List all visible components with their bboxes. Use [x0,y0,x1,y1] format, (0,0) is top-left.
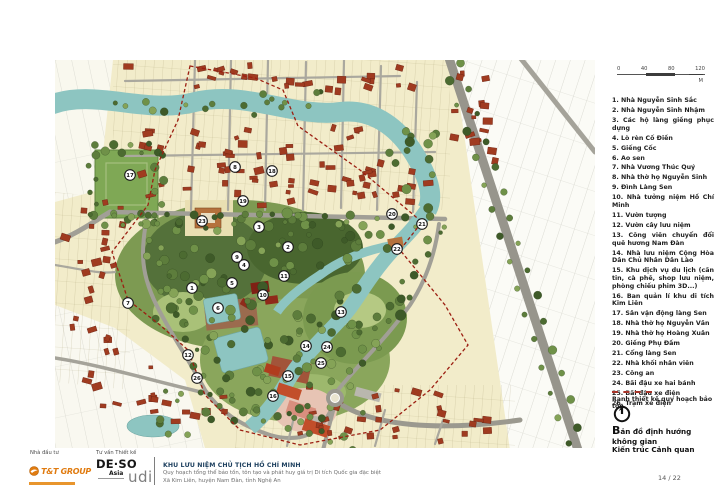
svg-text:13: 13 [337,310,345,316]
legend-item: 19. Nhà thờ họ Hoàng Xuân [612,330,714,338]
svg-text:25: 25 [317,361,325,367]
tnt-name: T&T GROUP [41,467,91,476]
svg-text:19: 19 [239,199,247,205]
legend-item: 6. Ao sen [612,155,714,163]
tnt-group-logo: T&T GROUP [29,461,91,485]
svg-text:12: 12 [184,353,192,359]
map-marker: 6 [213,303,224,314]
svg-text:20: 20 [388,212,396,218]
legend-item: 2. Nhà Nguyễn Sinh Nhậm [612,107,714,115]
masterplan-map: 1234567891011121314151617181920212223242… [55,60,595,448]
consultant-label: Tư vấn Thiết kế [96,450,136,456]
svg-text:17: 17 [126,173,134,179]
legend-item: 4. Lò rèn Cố Điền [612,135,714,143]
legend-item: 8. Nhà thờ họ Nguyễn Sinh [612,174,714,182]
tnt-tagline-bar [29,482,75,485]
map-marker: 8 [230,162,241,173]
legend-item: 10. Nhà tưởng niệm Hồ Chí Minh [612,194,714,209]
map-marker: 12 [183,350,194,361]
map-marker: 24 [322,342,333,353]
legend-item: 17. Sân vận động làng Sen [612,310,714,318]
svg-text:4: 4 [242,263,246,269]
legend-item: 21. Cổng làng Sen [612,350,714,358]
map-title-line2: Kiến trúc Cảnh quan [612,445,694,454]
legend-item: 12. Vườn cây lưu niệm [612,222,714,230]
svg-text:26: 26 [193,376,201,382]
map-marker: 20 [387,209,398,220]
udi-logo: udi [128,457,155,485]
svg-text:11: 11 [280,274,288,280]
legend-item: 3. Các hộ làng giềng phục dựng [612,117,714,132]
scale-bar-line [617,73,705,77]
plan-document-page: { "scale_bar": { "ticks": ["0", "40", "8… [0,0,716,499]
svg-text:18: 18 [268,169,276,175]
map-marker: 22 [392,244,403,255]
svg-text:22: 22 [393,247,401,253]
legend-item: 18. Nhà thờ họ Nguyễn Văn [612,320,714,328]
stadium [95,150,158,218]
map-marker: 5 [227,278,238,289]
map-sheet-title: Bản đồ định hướng không gian Kiến trúc C… [612,425,716,454]
map-marker: 1 [187,283,198,294]
svg-text:15: 15 [284,374,292,380]
svg-text:14: 14 [302,344,310,350]
scale-tick: 80 [668,66,675,72]
svg-text:8: 8 [233,165,237,171]
map-marker: 17 [125,170,136,181]
page-number: 14 / 22 [658,474,681,482]
roundabout [326,389,344,407]
svg-text:21: 21 [418,222,426,228]
project-subtitle-1: Quy hoạch tổng thể bảo tồn, tôn tạo và p… [163,470,423,477]
deso-rule [98,478,124,479]
investor-label: Nhà đầu tư [30,450,59,456]
map-marker: 10 [258,290,269,301]
map-marker: 15 [283,371,294,382]
map-marker: 11 [279,271,290,282]
svg-text:9: 9 [235,255,239,261]
map-marker: 13 [336,307,347,318]
map-marker: 19 [238,196,249,207]
legend-item: 23. Công an [612,370,714,378]
map-legend: 1. Nhà Nguyễn Sinh Sắc2. Nhà Nguyễn Sinh… [612,97,714,410]
svg-text:7: 7 [126,301,130,307]
map-marker: 25 [316,358,327,369]
map-marker: 18 [267,166,278,177]
svg-text:6: 6 [216,306,220,312]
map-marker: 3 [254,222,265,233]
legend-item: 9. Đình Làng Sen [612,184,714,192]
svg-text:23: 23 [198,219,206,225]
project-title: KHU LƯU NIỆM CHỦ TỊCH HỒ CHÍ MINH [163,462,423,469]
map-marker: 23 [197,216,208,227]
project-title-block: KHU LƯU NIỆM CHỦ TỊCH HỒ CHÍ MINH Quy ho… [163,462,423,485]
map-marker: 2 [283,242,294,253]
svg-text:16: 16 [269,394,277,400]
tnt-emblem-icon [29,461,39,481]
legend-item: 13. Công viên chuyển đổi quê hương Nam Đ… [612,232,714,247]
svg-text:5: 5 [230,281,234,287]
map-marker: 7 [123,298,134,309]
legend-item: 7. Nhà Vương Thúc Quý [612,164,714,172]
map-marker: 14 [301,341,312,352]
legend-item: 5. Giếng Cốc [612,145,714,153]
svg-text:2: 2 [286,245,290,251]
svg-text:3: 3 [257,225,261,231]
svg-text:1: 1 [190,286,194,292]
scale-tick: 40 [641,66,648,72]
masterplan-canvas: 1234567891011121314151617181920212223242… [55,60,595,448]
svg-text:10: 10 [259,293,267,299]
map-marker: 16 [268,391,279,402]
legend-item: 20. Giếng Phụ Đầm [612,340,714,348]
legend-item: 22. Nhà khối nhân viên [612,360,714,368]
scale-tick: 120 [695,66,705,72]
svg-text:24: 24 [323,345,331,351]
udi-name: udi [128,470,153,485]
udi-bar [154,457,156,485]
project-subtitle-2: Xã Kim Liên, huyện Nam Đàn, tỉnh Nghệ An [163,478,423,485]
map-marker: 26 [192,373,203,384]
scale-unit: M [617,78,705,84]
map-marker: 21 [417,219,428,230]
boundary-dash-sample [612,391,652,393]
legend-item: 1. Nhà Nguyễn Sinh Sắc [612,97,714,105]
scale-tick: 0 [617,66,620,72]
map-title-line1: ản đồ định hướng không gian [612,427,691,446]
legend-item: 15. Khu dịch vụ du lịch (căn tin, cà phê… [612,267,714,290]
scale-bar: 0 40 80 120 M [617,66,705,84]
legend-item: 11. Vườn tượng [612,212,714,220]
legend-item: 14. Nhà lưu niệm Cộng Hòa Dân Chủ Nhân D… [612,250,714,265]
map-marker: 9 [232,252,243,263]
legend-item: 16. Ban quản lí khu di tích Kim Liên [612,293,714,308]
legend-item: 24. Bãi đậu xe hai bánh [612,380,714,388]
